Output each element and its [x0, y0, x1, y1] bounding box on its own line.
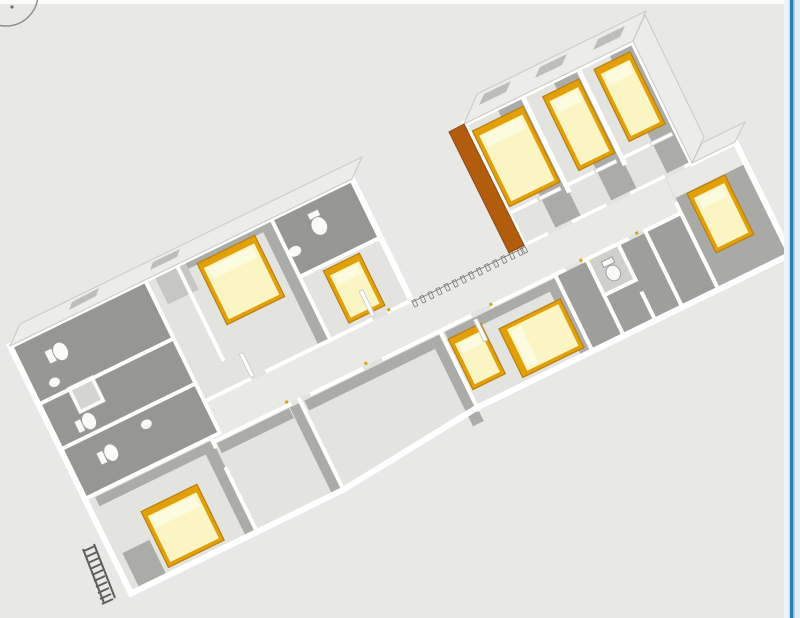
border-inner-blue: [793, 0, 795, 618]
floorplan-canvas[interactable]: [0, 0, 800, 618]
floorplan-viewport: [0, 0, 800, 618]
border-pale-edge: [795, 0, 800, 618]
border-outer-light: [789, 0, 791, 618]
top-window-strip: [0, 0, 800, 4]
rotate-dot-icon: [10, 5, 13, 8]
window-right-border: [784, 0, 800, 618]
border-blue-line: [790, 0, 793, 618]
